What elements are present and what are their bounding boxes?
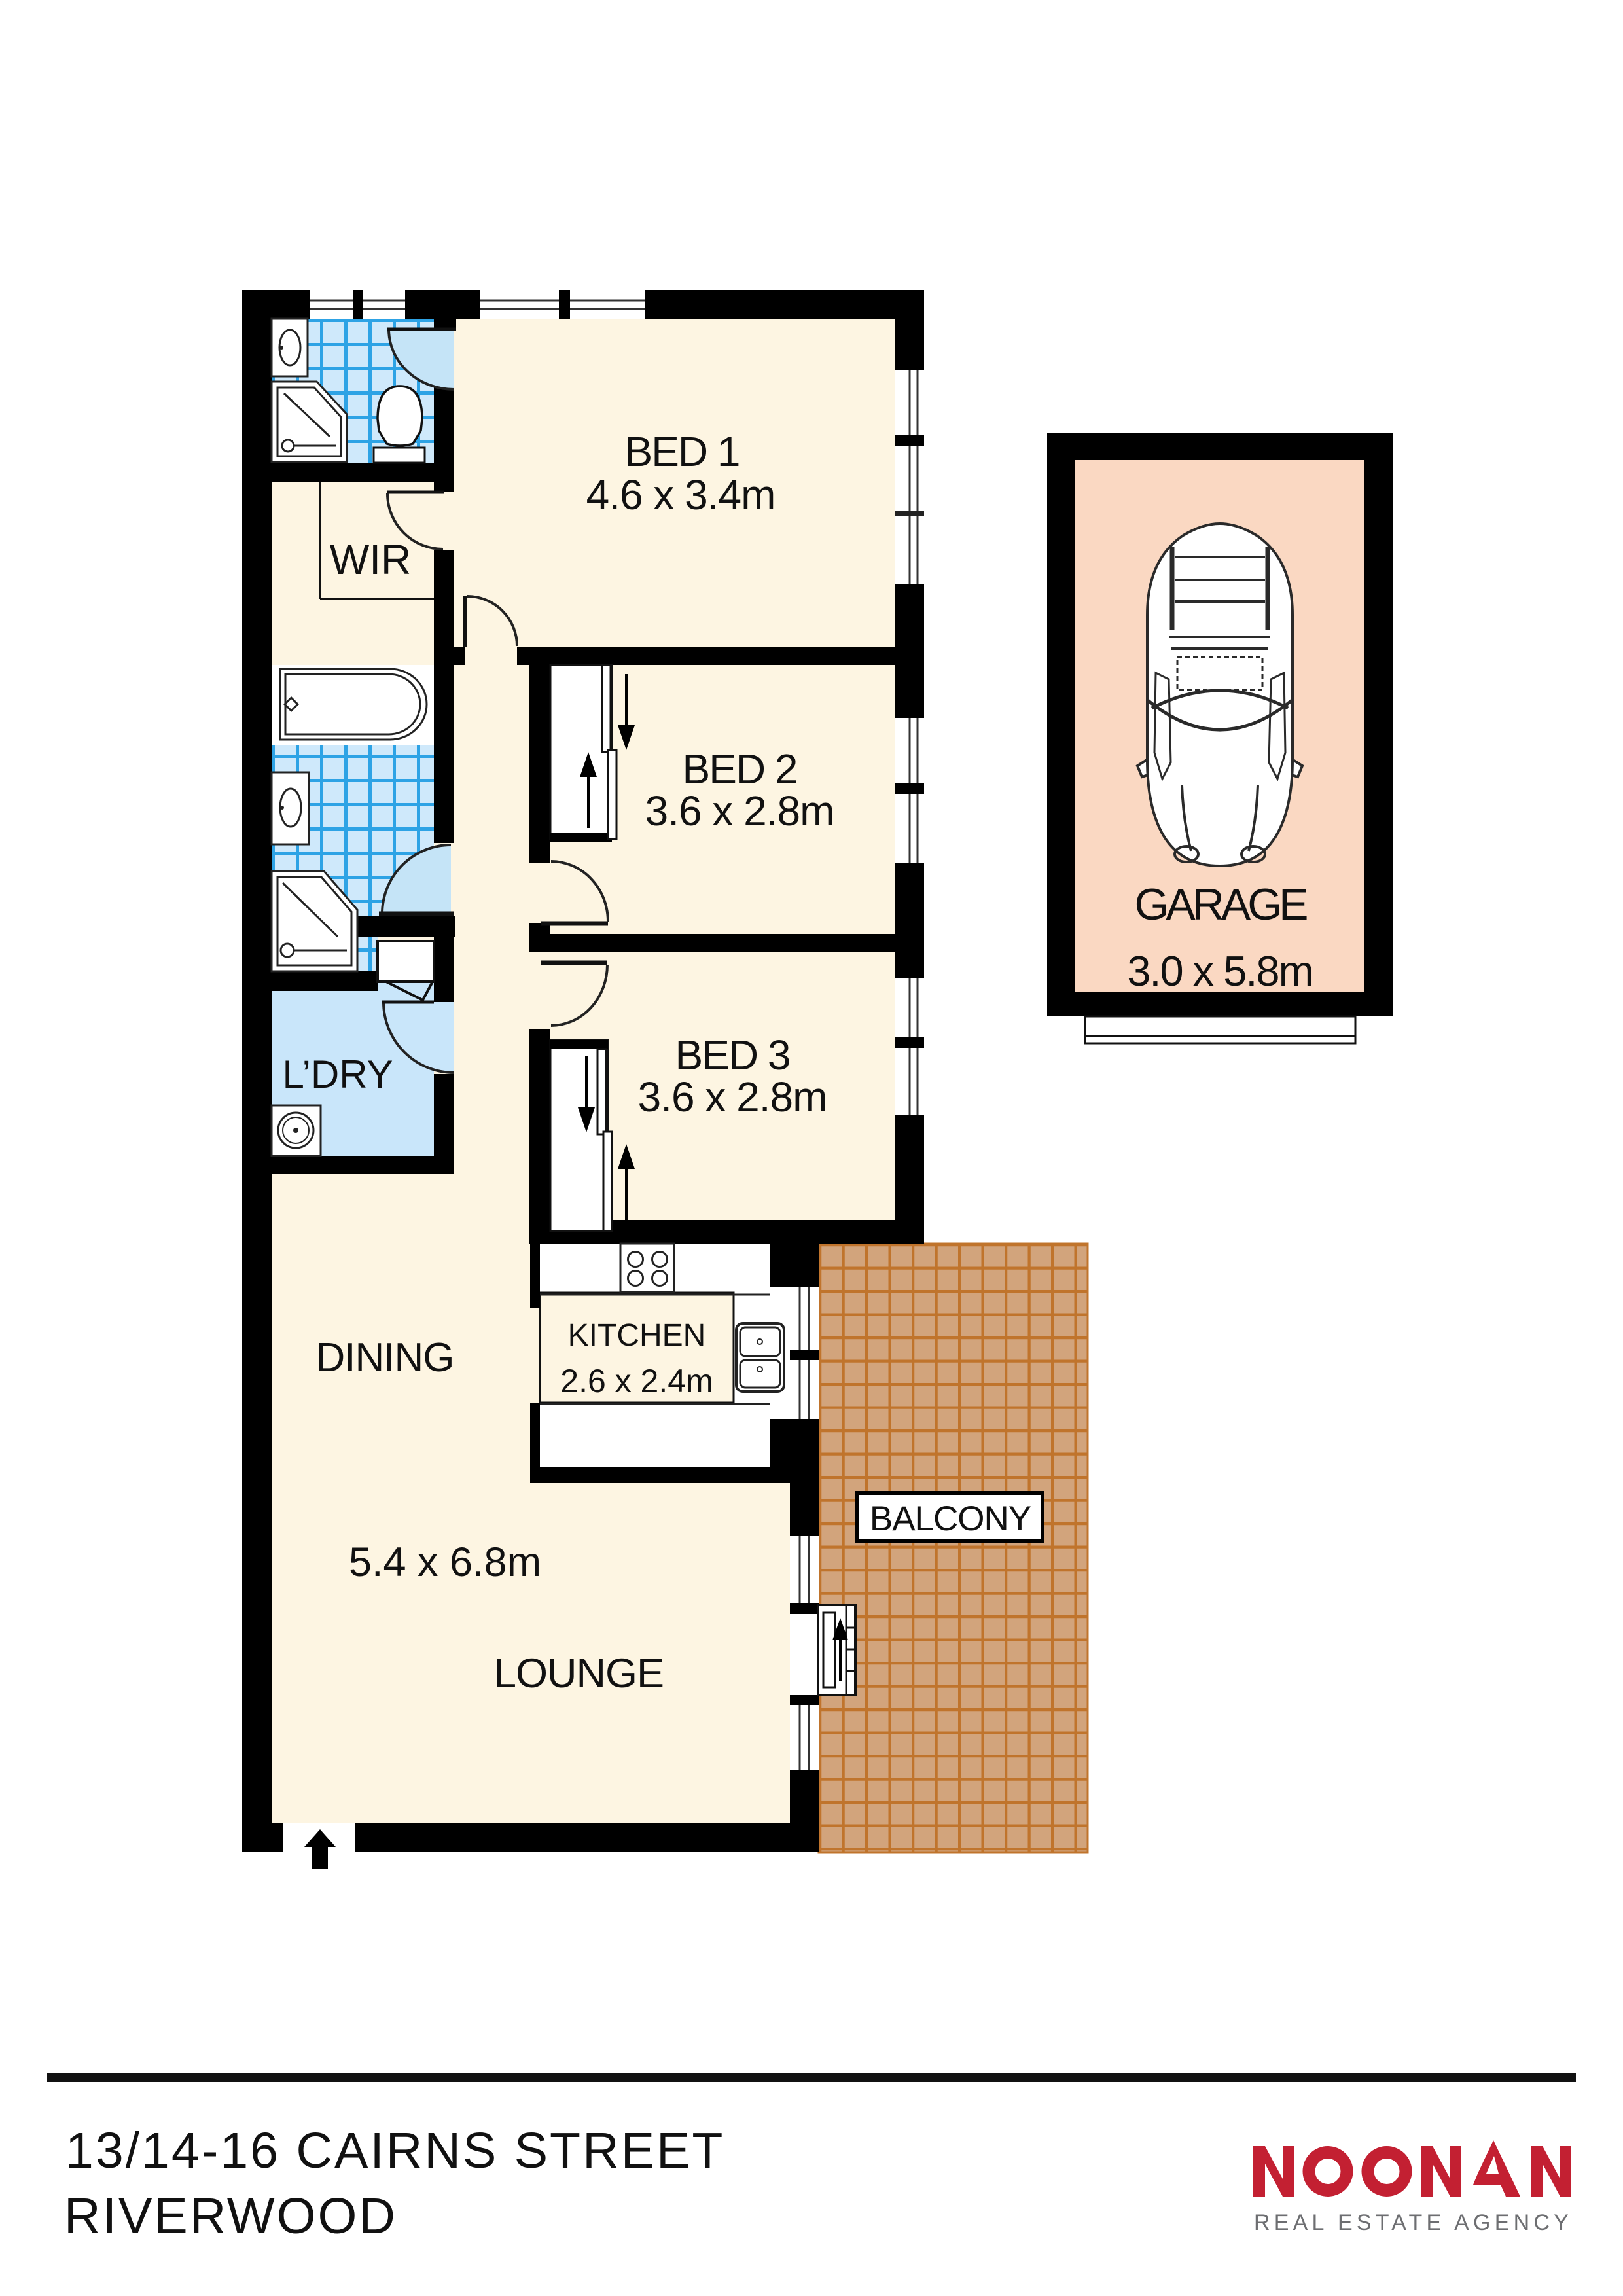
svg-text:WIR: WIR [330, 536, 411, 583]
svg-text:3.6 x 2.8m: 3.6 x 2.8m [645, 787, 834, 834]
svg-text:2.6 x 2.4m: 2.6 x 2.4m [560, 1363, 713, 1399]
svg-text:4.6 x 3.4m: 4.6 x 3.4m [586, 471, 776, 518]
svg-text:BALCONY: BALCONY [870, 1499, 1031, 1538]
svg-text:BED 2: BED 2 [683, 745, 797, 793]
svg-text:DINING: DINING [316, 1335, 454, 1380]
svg-text:L’DRY: L’DRY [283, 1052, 393, 1096]
svg-text:3.6 x 2.8m: 3.6 x 2.8m [638, 1073, 827, 1121]
svg-text:KITCHEN: KITCHEN [568, 1318, 706, 1353]
svg-text:3.0 x 5.8m: 3.0 x 5.8m [1127, 947, 1312, 995]
svg-text:BED 1: BED 1 [625, 428, 740, 475]
svg-text:BED 3: BED 3 [675, 1031, 790, 1079]
svg-text:13/14-16 CAIRNS STREET: 13/14-16 CAIRNS STREET [65, 2123, 724, 2179]
svg-text:LOUNGE: LOUNGE [493, 1651, 664, 1696]
svg-text:RIVERWOOD: RIVERWOOD [64, 2188, 397, 2244]
svg-text:REAL ESTATE AGENCY: REAL ESTATE AGENCY [1254, 2210, 1573, 2235]
svg-text:GARAGE: GARAGE [1135, 880, 1308, 929]
svg-text:5.4 x 6.8m: 5.4 x 6.8m [349, 1539, 541, 1585]
